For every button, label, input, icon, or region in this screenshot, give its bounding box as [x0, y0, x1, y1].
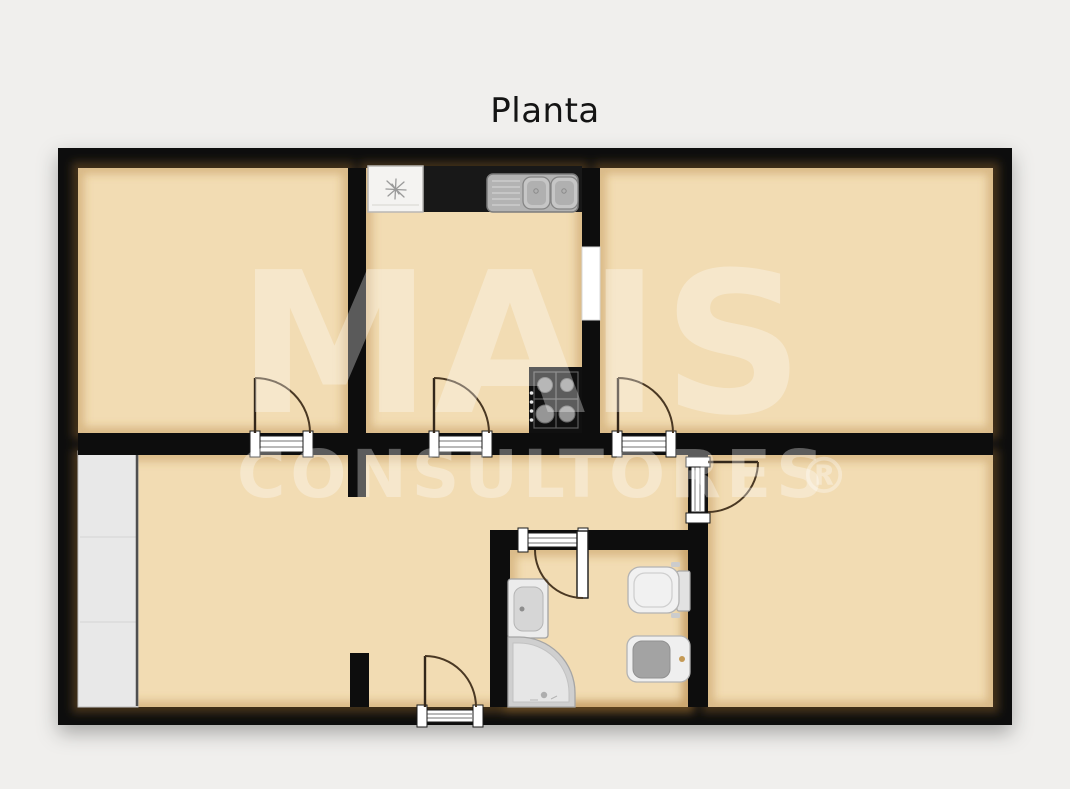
wardrobe-body	[78, 451, 138, 707]
toilet-hinge	[671, 613, 680, 618]
watermark-line2: CONSULTORES	[237, 436, 829, 513]
wall-stub-bottom	[350, 653, 369, 707]
watermark-line1: MAIS	[237, 231, 806, 459]
fridge	[368, 166, 423, 212]
wardrobe	[78, 451, 138, 707]
toilet-icon	[628, 562, 690, 618]
watermark-registered-icon: ®	[799, 447, 849, 505]
bidet-tap	[679, 656, 685, 662]
floorplan-svg: Planta	[0, 0, 1070, 789]
page-title: Planta	[490, 91, 600, 131]
bidet-icon	[627, 636, 690, 682]
kitchen-double-sink-icon	[487, 174, 578, 212]
watermark: MAIS CONSULTORES ®	[237, 231, 849, 513]
bathroom-sink-icon	[508, 579, 548, 638]
floorplan-page: Planta	[0, 0, 1070, 789]
toilet-hinge	[671, 562, 680, 567]
wall-bathroom-left	[490, 530, 510, 707]
